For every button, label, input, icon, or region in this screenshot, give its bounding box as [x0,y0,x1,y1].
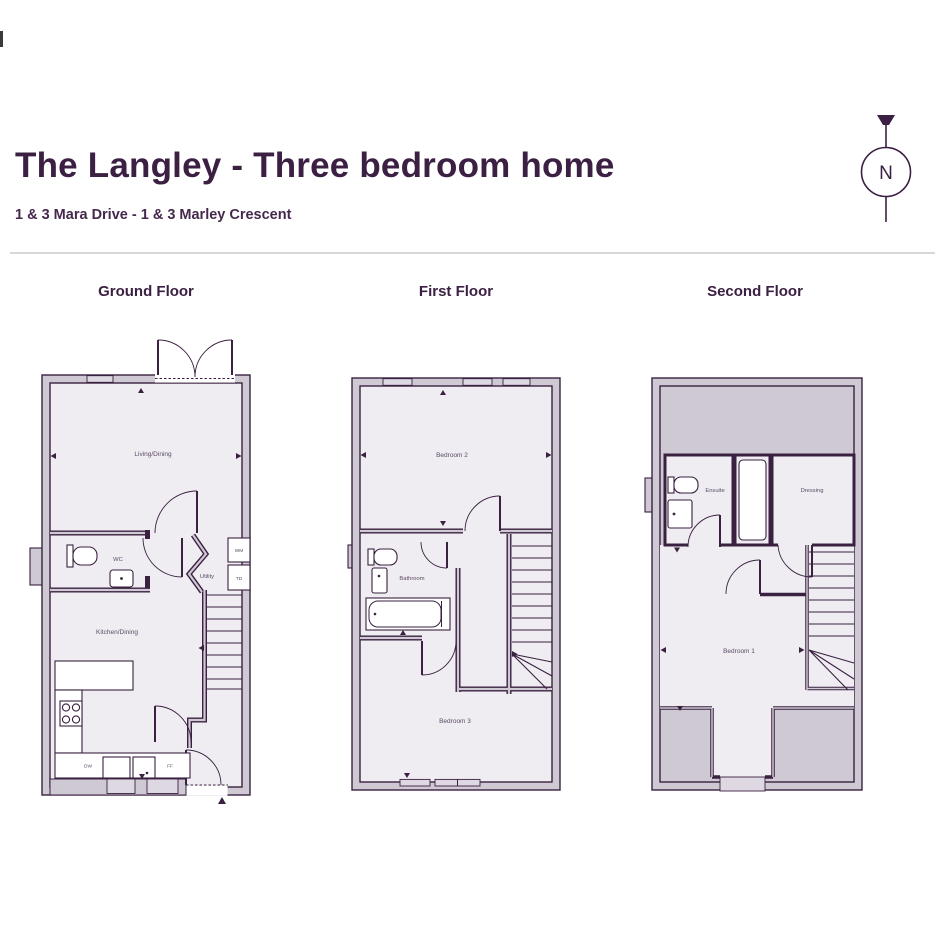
dressing-room [772,455,854,545]
window [87,376,113,383]
appliance-label-dw: DW [84,764,92,770]
window [463,379,492,386]
first-floor-title: First Floor [340,283,572,300]
room-label-utility: Utility [200,574,214,580]
dormer-floor [712,708,773,777]
room-label-bathroom: Bathroom [399,576,424,582]
window [383,379,412,386]
room-label-bedroom2: Bedroom 2 [436,452,468,459]
appliance-label-ff: FF [167,764,173,770]
window [400,779,430,786]
hob-icon [60,701,82,726]
compass-north-label: N [879,163,893,184]
toilet-icon [668,477,698,493]
compass-arrow-icon [877,115,895,125]
room-label-dressing: Dressing [801,488,824,494]
shower-tray-icon [739,460,766,540]
second-floor-plan: Ensuite Dressing Bedroom 1 [636,363,874,803]
room-label-living-dining: Living/Dining [134,451,172,458]
floorplan-page: The Langley - Three bedroom home 1 & 3 M… [0,0,945,945]
window [147,779,178,794]
room-label-bedroom3: Bedroom 3 [439,718,471,725]
bedroom1-floor [660,545,854,708]
room-label-wc: WC [113,557,123,563]
second-floor-title: Second Floor [636,283,874,300]
room-label-kitchen-dining: Kitchen/Dining [96,629,138,636]
basin-icon [668,500,692,528]
ground-floor-title: Ground Floor [28,283,264,300]
window [503,379,530,386]
scan-artifact [0,31,3,47]
window [107,779,135,794]
entrance-marker [218,797,226,804]
appliance-label-td: TD [236,576,243,582]
appliance-label-wm: WM [235,548,244,554]
wc-basin-icon [110,570,133,587]
page-title: The Langley - Three bedroom home [15,146,615,186]
room-label-bedroom1: Bedroom 1 [723,648,755,655]
dormer-window [720,777,765,791]
page-subtitle: 1 & 3 Mara Drive - 1 & 3 Marley Crescent [15,207,291,223]
first-floor-plan: Bedroom 2 Bathroom Bedroom 3 [340,363,572,803]
french-doors [155,340,235,383]
basin-icon [372,568,387,593]
header-divider [10,252,935,254]
toilet-icon [368,549,397,565]
room-label-ensuite: Ensuite [705,488,724,494]
sink-icon [103,757,155,778]
ground-floor-plan: Living/Dining WC Utility Kitchen/Dining … [28,333,264,819]
wc-toilet-icon [67,545,97,567]
bathtub-icon [366,598,450,630]
north-compass-icon: N [855,108,917,228]
